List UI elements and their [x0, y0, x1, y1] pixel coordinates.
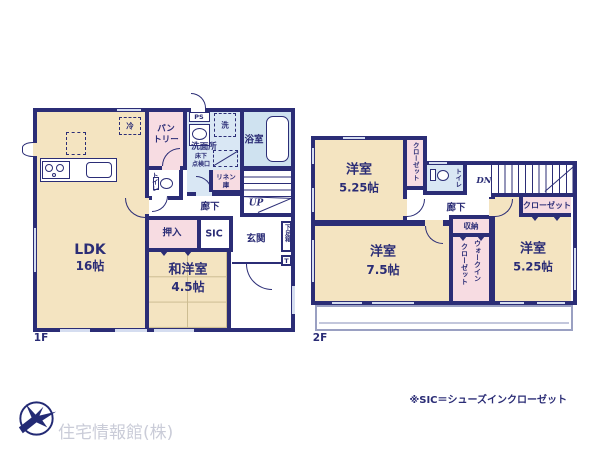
label-linen-line2: 庫	[223, 182, 230, 189]
balcony	[315, 305, 573, 331]
door-gap	[162, 166, 180, 170]
label-linen-line1: リネン	[216, 174, 236, 181]
stairs-2f	[491, 165, 573, 193]
wall-segment	[311, 136, 427, 140]
window-marker	[312, 188, 315, 212]
wall-segment	[449, 215, 493, 219]
toilet-bowl-icon	[160, 178, 173, 189]
walkin-closet-2f	[453, 237, 489, 301]
label-closet-2f-nw: クローゼット	[412, 142, 419, 181]
wall-segment	[209, 190, 244, 194]
stove-burner-icon	[52, 173, 56, 177]
window-marker	[429, 162, 447, 165]
sink-icon	[86, 162, 112, 178]
label-up: UP	[249, 200, 264, 209]
room-size-ldk: 16帖	[76, 260, 105, 272]
room-size-2f-se: 5.25帖	[513, 261, 553, 273]
room-size-wayoushitsu: 4.5帖	[171, 281, 204, 293]
label-senmenjo: 洗面所	[191, 143, 217, 152]
window-marker	[500, 302, 524, 305]
door-gap	[145, 198, 149, 214]
wall-segment	[145, 112, 149, 328]
window-marker	[332, 302, 362, 305]
window-marker	[574, 248, 577, 290]
label-sic: SIC	[205, 229, 222, 239]
label-dn: DN	[476, 177, 491, 186]
wall-segment	[229, 216, 233, 252]
label-tbox: T	[284, 257, 288, 264]
sic-note: ※SIC＝シューズインクローゼット	[410, 391, 567, 406]
window-marker	[312, 148, 315, 164]
label-toilet-2f: トイレ	[454, 168, 461, 188]
vanity-basin-icon	[192, 128, 207, 140]
window-marker	[312, 240, 315, 282]
window-marker	[115, 329, 147, 332]
wall-segment	[240, 213, 291, 217]
door-arc	[22, 142, 33, 157]
sliding-door-mark	[160, 251, 168, 256]
label-ps: PS	[194, 114, 203, 121]
wall-segment	[427, 191, 467, 195]
label-tenkenkou: 点検口	[192, 162, 210, 168]
door-gap	[33, 143, 37, 156]
sliding-door-mark	[531, 216, 539, 221]
stove-burner-icon	[56, 164, 64, 172]
wall-segment	[240, 112, 244, 213]
wall-segment	[491, 193, 573, 197]
label-oshiire: 押入	[162, 228, 181, 238]
window-marker	[343, 137, 365, 140]
label-refrigerator: 冷	[126, 122, 134, 130]
bathtub-icon	[266, 116, 289, 162]
window-marker	[60, 329, 90, 332]
label-bath: 浴室	[244, 135, 263, 145]
door-gap	[196, 192, 212, 196]
balcony-inner-line	[319, 322, 569, 324]
window-marker	[117, 109, 141, 112]
label-storage-2f: 収納	[464, 222, 479, 230]
wall-segment	[183, 112, 187, 170]
floor-label-1f: 1F	[34, 333, 48, 344]
sliding-door-mark	[553, 216, 561, 221]
label-wic-line2: クローゼット	[461, 243, 468, 285]
wall-segment	[407, 186, 427, 190]
wall-segment	[463, 165, 467, 195]
label-wic-line1: ウォークイン	[474, 240, 481, 282]
label-pantry-line1: パン	[157, 125, 174, 134]
toilet-bowl-icon	[437, 170, 449, 181]
room-label-ldk: LDK	[74, 243, 105, 257]
kitchen-island-icon	[66, 132, 86, 155]
label-closet-2f-e: クローゼット	[523, 202, 571, 210]
room-label-2f-nw: 洋室	[346, 164, 372, 177]
label-pantry-line2: トリー	[153, 136, 179, 145]
room-size-2f-nw: 5.25帖	[339, 182, 379, 194]
door-arc	[191, 93, 206, 108]
company-logo-bird-icon	[13, 395, 60, 442]
label-rouka-2f: 廊下	[446, 203, 465, 213]
room-label-2f-se: 洋室	[520, 243, 546, 256]
room-label-wayoushitsu: 和洋室	[168, 264, 207, 277]
window-marker	[292, 286, 295, 314]
sliding-door-mark	[184, 251, 192, 256]
label-genkan: 玄関	[246, 234, 265, 244]
sliding-door-mark	[459, 236, 467, 241]
window-marker	[154, 329, 194, 332]
wall-segment	[449, 215, 453, 301]
room-label-2f-sw: 洋室	[370, 246, 396, 259]
wall-segment	[519, 213, 571, 217]
window-marker	[372, 302, 414, 305]
window-marker	[537, 302, 565, 305]
floorplan-canvas: LDK 16帖 和洋室 4.5帖 パン トリー PS 洗 洗面所 床下 点検口 …	[0, 0, 600, 450]
company-name: 住宅情報館(株)	[58, 418, 173, 443]
toilet-tank-icon	[430, 169, 436, 181]
wall-segment	[244, 166, 291, 170]
label-getabako: 下足箱	[284, 224, 290, 242]
stove-burner-icon	[45, 164, 53, 172]
genkan-step-line	[232, 262, 283, 264]
wall-segment	[179, 170, 183, 196]
wall-segment	[149, 216, 233, 220]
floor-label-2f: 2F	[313, 333, 327, 344]
wall-segment	[227, 252, 231, 328]
stairs-1f	[244, 170, 291, 197]
label-rouka-1f: 廊下	[200, 202, 219, 212]
wall-segment	[197, 220, 201, 248]
label-toilet-1f: トイレ	[151, 172, 158, 192]
window-marker	[34, 228, 37, 272]
room-size-2f-sw: 7.5帖	[366, 264, 399, 276]
room-ldk	[37, 112, 145, 328]
label-yukashita: 床下	[195, 154, 207, 160]
label-washer: 洗	[221, 121, 229, 129]
